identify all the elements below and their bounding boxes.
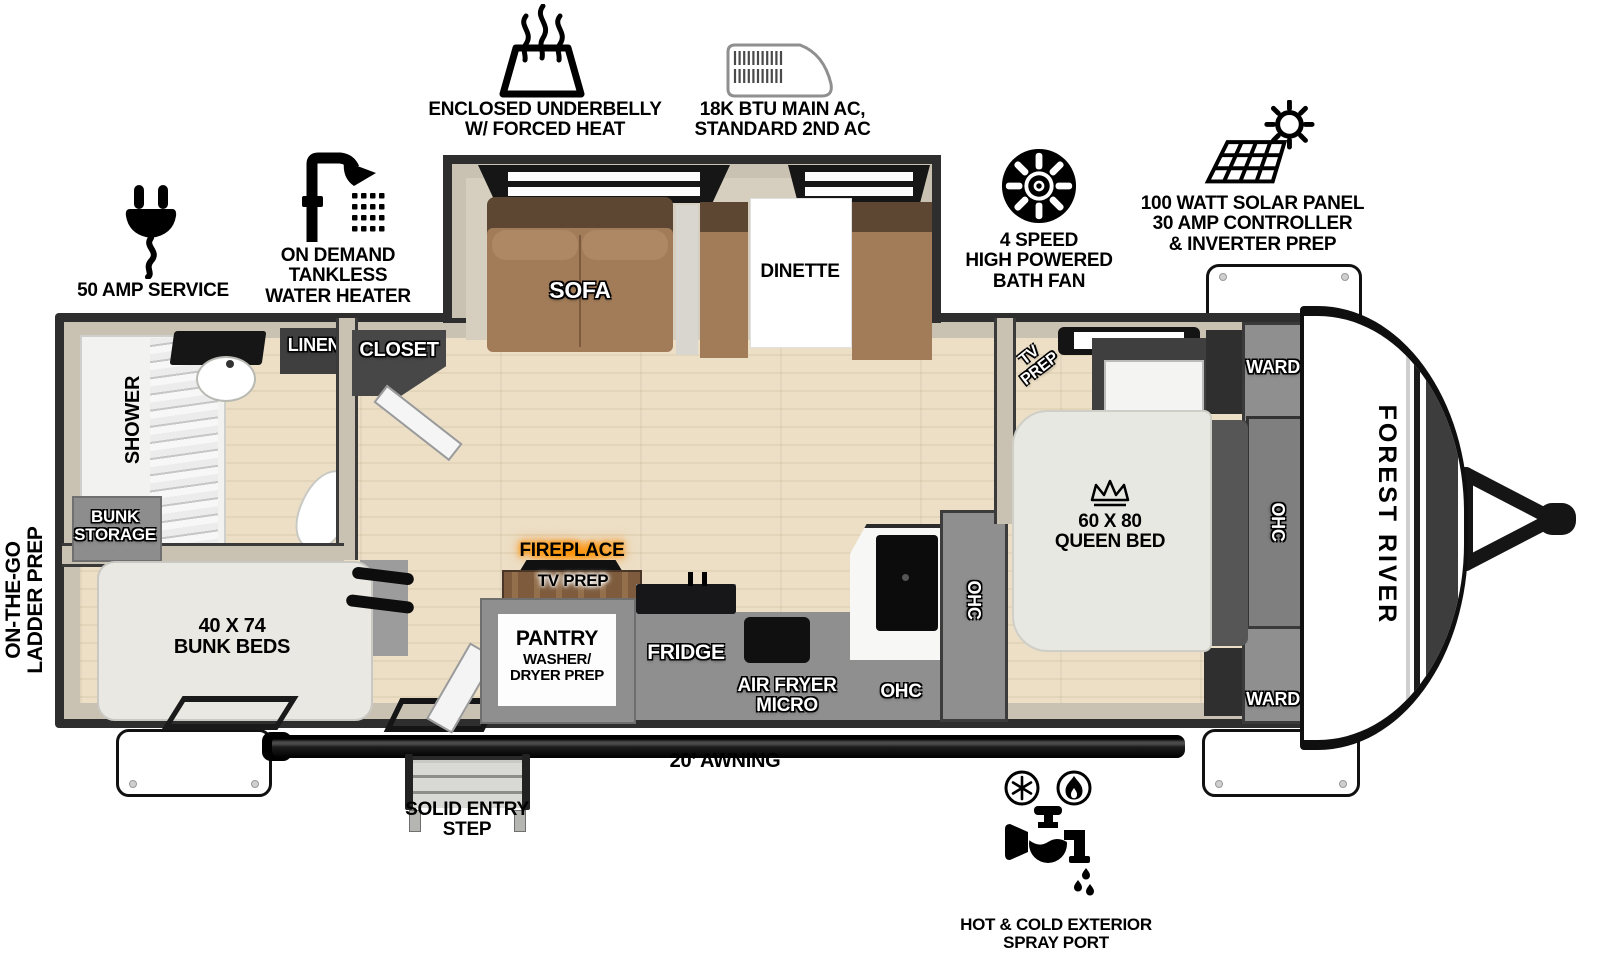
ohc-bedroom-label: OHC — [1263, 487, 1287, 557]
amp-service-label: 50 AMP SERVICE — [68, 281, 238, 301]
spray-port-label: HOT & COLD EXTERIOR SPRAY PORT — [950, 916, 1162, 952]
shower-label: SHOWER — [123, 350, 149, 490]
underbelly-heat-icon — [478, 4, 603, 100]
front-cap-stripe-dark — [1426, 316, 1458, 740]
solar-panel-icon — [1198, 100, 1316, 196]
ward-front-label: WARD — [1240, 358, 1306, 377]
brand-label: FOREST RIVER — [1370, 355, 1400, 675]
bathroom-faucet — [226, 360, 234, 368]
fridge-label: FRIDGE — [636, 642, 736, 664]
fridge-handle-1 — [688, 572, 693, 586]
stabilizer-jack-pad-rear — [116, 729, 272, 797]
fireplace-label: FIREPLACE — [512, 541, 632, 561]
front-cap-stripe-light — [1406, 316, 1410, 740]
entry-step-label: SOLID ENTRY STEP — [392, 800, 542, 841]
bedroom-corner-cabinet-bottom — [1204, 648, 1244, 716]
spray-port-icon — [988, 768, 1108, 908]
bath-fan-label: 4 SPEED HIGH POWERED BATH FAN — [950, 231, 1128, 292]
bunk-bed-label: 40 X 74 BUNK BEDS — [142, 616, 322, 658]
bedroom-corner-cabinet-top — [1206, 330, 1244, 414]
dinette-label: DINETTE — [752, 262, 848, 282]
front-cap-stripe-thin — [1414, 316, 1420, 740]
ac-unit-icon — [718, 40, 843, 102]
floor-hatch-frame — [161, 696, 298, 730]
power-plug-icon — [120, 183, 182, 279]
fridge-handle-2 — [702, 572, 707, 586]
water-heater-label: ON DEMAND TANKLESS WATER HEATER — [258, 246, 418, 307]
crown-icon — [1088, 478, 1132, 508]
ohc-kitchen-label: OHC — [870, 682, 932, 702]
air-fryer-appliance — [744, 617, 810, 663]
underbelly-label: ENCLOSED UNDERBELLY W/ FORCED HEAT — [425, 100, 665, 141]
dinette-side-table — [676, 205, 698, 355]
solar-label: 100 WATT SOLAR PANEL 30 AMP CONTROLLER &… — [1130, 194, 1375, 255]
sofa-label: SOFA — [510, 278, 650, 302]
ladder-prep-label: ON-THE-GO LADDER PREP — [3, 475, 63, 725]
sofa-cushion-right — [582, 230, 668, 260]
bunk-storage-label: BUNK STORAGE — [70, 508, 160, 544]
dinette-bench-left-back — [700, 202, 748, 232]
rv-floorplan-diagram: SOFA DINETTE SHOWER LINEN CLOSET BUNK ST… — [0, 0, 1600, 979]
pantry-label: PANTRY — [498, 628, 616, 650]
bedroom-dresser-front — [1104, 360, 1204, 412]
awning-label: 20’ AWNING — [640, 751, 810, 772]
dinette-bench-right-back — [852, 202, 932, 232]
queen-bed-label: 60 X 80 QUEEN BED — [1040, 512, 1180, 552]
bath-fan-icon — [1000, 147, 1078, 225]
pantry-sub-label: WASHER/ DRYER PREP — [498, 652, 616, 684]
ac-label: 18K BTU MAIN AC, STANDARD 2ND AC — [665, 100, 900, 141]
range-cooktop — [876, 535, 938, 631]
ward-rear-label: WARD — [1240, 690, 1306, 709]
ohc-kitchen-wall-label: OHC — [959, 565, 983, 635]
air-fryer-label: AIR FRYER MICRO — [722, 676, 852, 716]
tv-prep-living-label: TV PREP — [518, 572, 628, 590]
sofa-cushion-left — [492, 230, 578, 260]
shower-head-icon — [296, 150, 388, 246]
closet-label: CLOSET — [352, 340, 446, 361]
fridge-top — [636, 584, 736, 614]
range-knob — [902, 574, 909, 581]
